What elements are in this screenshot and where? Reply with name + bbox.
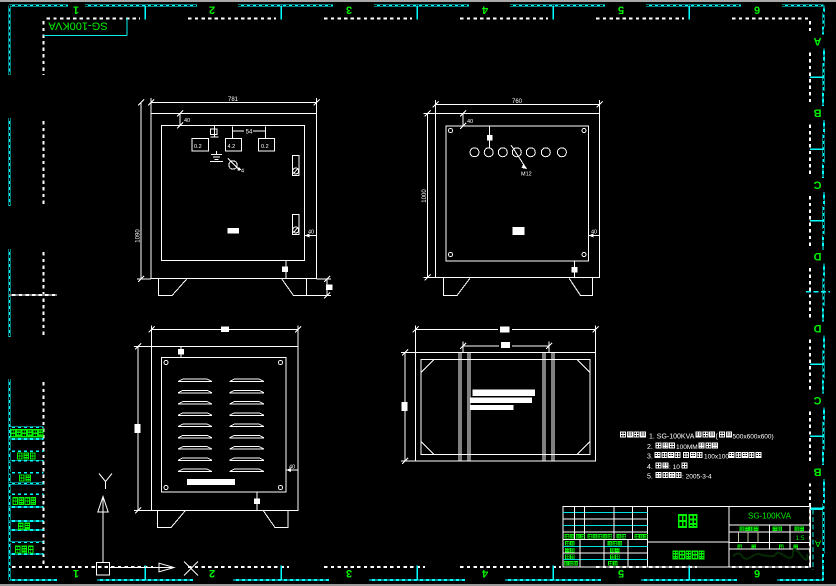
svg-text:1: 1 xyxy=(73,4,79,16)
svg-text:100x100: 100x100 xyxy=(704,454,729,461)
svg-text:4.2: 4.2 xyxy=(228,144,236,150)
svg-text:3: 3 xyxy=(346,4,352,16)
svg-text:: 10: : 10 xyxy=(669,464,680,471)
svg-text:100MM: 100MM xyxy=(676,444,698,451)
svg-text:: 2005-3-4: : 2005-3-4 xyxy=(682,473,712,480)
svg-text:40: 40 xyxy=(591,230,597,236)
svg-text:1: 1 xyxy=(73,567,79,579)
svg-text:B: B xyxy=(813,107,821,119)
svg-text:3.: 3. xyxy=(647,454,653,461)
svg-text:1000: 1000 xyxy=(422,189,428,203)
svg-text:54: 54 xyxy=(246,130,253,136)
svg-text:40: 40 xyxy=(289,465,295,471)
svg-text:4.: 4. xyxy=(647,464,653,471)
svg-text:B: B xyxy=(813,466,821,478)
svg-text:0.2: 0.2 xyxy=(261,144,269,150)
svg-text:D: D xyxy=(813,322,821,334)
svg-text:2.: 2. xyxy=(647,444,653,451)
svg-text:1:5: 1:5 xyxy=(795,535,804,542)
svg-text:D: D xyxy=(813,250,821,262)
svg-text:40: 40 xyxy=(184,118,190,124)
svg-text:4: 4 xyxy=(481,4,488,16)
svg-text:SG-100KVA: SG-100KVA xyxy=(748,512,792,521)
svg-text:4: 4 xyxy=(241,169,244,175)
svg-text:6: 6 xyxy=(754,4,760,16)
svg-text:M12: M12 xyxy=(521,172,532,178)
svg-text:500x600x600): 500x600x600) xyxy=(733,433,774,440)
svg-text:(: ( xyxy=(716,433,719,440)
svg-text:0.2: 0.2 xyxy=(194,144,202,150)
svg-text:1090: 1090 xyxy=(136,229,142,243)
svg-text:781: 781 xyxy=(228,97,239,103)
svg-text:A: A xyxy=(814,537,821,548)
svg-text:2: 2 xyxy=(209,567,215,579)
svg-text:5.: 5. xyxy=(647,474,653,481)
svg-text:1. SG-100KVA: 1. SG-100KVA xyxy=(649,433,695,440)
svg-text:6: 6 xyxy=(754,567,760,579)
svg-text:40: 40 xyxy=(308,230,314,236)
svg-text:5: 5 xyxy=(618,567,624,579)
svg-text:C: C xyxy=(813,179,821,191)
svg-text:A: A xyxy=(813,35,821,47)
svg-text:40: 40 xyxy=(467,119,473,125)
svg-text:760: 760 xyxy=(512,99,523,105)
svg-text:3: 3 xyxy=(346,567,352,579)
svg-text:2: 2 xyxy=(209,4,215,16)
svg-text:4: 4 xyxy=(481,567,488,579)
svg-text:5: 5 xyxy=(618,4,624,16)
svg-text:SG-100KVA: SG-100KVA xyxy=(48,20,108,32)
svg-text:C: C xyxy=(813,394,821,406)
